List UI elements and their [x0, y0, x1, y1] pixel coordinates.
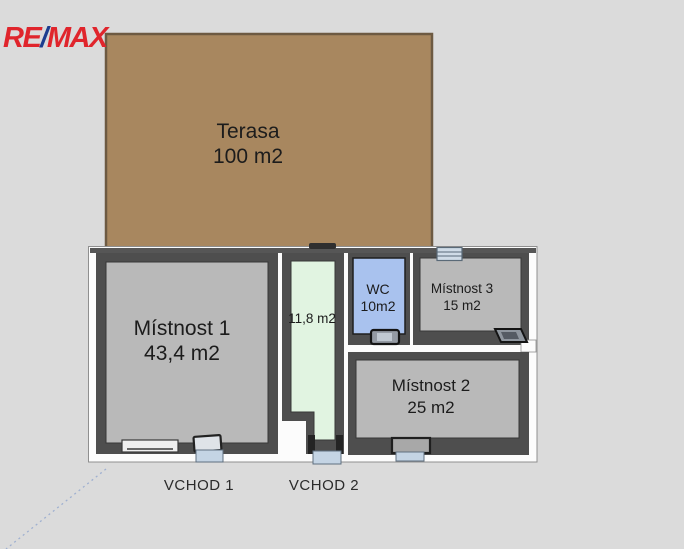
entrance1-door	[193, 435, 221, 452]
floorplan-screenshot: Terasa 100 m2	[0, 0, 684, 549]
terrace-area-label: 100 m2	[213, 145, 283, 168]
room3-name: Místnost 3	[431, 281, 493, 296]
room3-area: 15 m2	[443, 298, 481, 313]
remax-logo-max: MAX	[47, 22, 107, 54]
wc-area: 10m2	[360, 298, 395, 314]
room2-area: 25 m2	[407, 398, 454, 417]
corridor-area: 11,8 m2	[288, 311, 336, 326]
room1-window	[122, 440, 178, 452]
room1-name: Místnost 1	[134, 317, 231, 340]
dotted-boundary-line	[6, 469, 106, 549]
entrance1-label: VCHOD 1	[164, 477, 234, 494]
floorplan-drawing: Terasa 100 m2	[0, 0, 684, 549]
terrace-door	[309, 243, 336, 249]
entrance1-sill	[196, 450, 223, 462]
room2-door-sill	[396, 452, 424, 461]
entrance2-label: VCHOD 2	[289, 477, 359, 494]
room2-door	[392, 438, 430, 461]
top-window	[437, 248, 462, 261]
entrance2-sill	[313, 451, 341, 464]
room2-name: Místnost 2	[392, 376, 470, 395]
room1-area: 43,4 m2	[144, 342, 220, 365]
wc-door	[371, 330, 399, 344]
terrace-name: Terasa	[216, 120, 279, 143]
room3-door	[495, 329, 527, 342]
remax-logo: RE/MAX	[3, 24, 107, 53]
wc-name: WC	[366, 281, 389, 297]
remax-logo-re: RE	[3, 22, 40, 54]
